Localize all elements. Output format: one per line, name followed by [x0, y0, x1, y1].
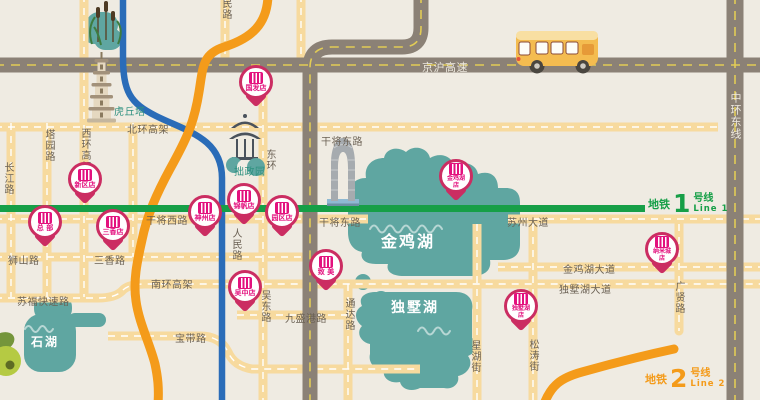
- metro-line1-number: 1: [673, 193, 690, 215]
- store-pin-label-line2: 店: [518, 313, 524, 320]
- road-label-ganjiang-east-upper: 干将东路: [321, 133, 363, 148]
- store-logo-icon: [275, 202, 289, 214]
- road-label-renmin-road: 人民路: [228, 228, 243, 261]
- road-label-sanxiang-road: 三香路: [94, 252, 126, 267]
- store-pin-label: 园区店: [272, 215, 293, 223]
- store-logo-icon: [449, 163, 463, 175]
- metro-line2-system: 地铁: [645, 371, 667, 387]
- metro-line2-english: Line 2: [690, 379, 725, 389]
- lake-label-jinji: 金鸡湖: [381, 228, 435, 252]
- metro-line1-label: 地铁 1 号线 Line 1: [648, 193, 728, 215]
- road-label-xinghu-street: 星湖街: [467, 340, 482, 373]
- lake-label-shihu: 石湖: [31, 333, 59, 350]
- store-logo-icon: [198, 202, 212, 214]
- store-pin-label: 锦帆店: [234, 203, 255, 211]
- store-pin-label: 新区店: [75, 182, 96, 190]
- road-label-baodai-road: 宝带路: [175, 330, 207, 345]
- road-label-songtao-street: 松涛街: [525, 339, 540, 372]
- store-logo-icon: [514, 293, 528, 305]
- store-logo-icon: [78, 169, 92, 181]
- road-label-tongda-road: 通达路: [341, 298, 356, 331]
- road-label-tayuan-road: 塔园路: [41, 129, 56, 162]
- road-label-ganjiang-west: 干将西路: [146, 212, 188, 227]
- road-label-jiushenggang-road: 九盛港路: [285, 310, 327, 325]
- lake-label-dushu: 独墅湖: [391, 297, 439, 317]
- metro-line2-label: 地铁 2 号线 Line 2: [645, 368, 725, 390]
- road-label-sufu-expressway: 苏福快速路: [17, 293, 70, 308]
- metro-line2-word: 号线: [690, 369, 725, 379]
- store-logo-icon: [38, 212, 52, 224]
- store-pin-label-line2: 店: [659, 256, 665, 263]
- store-pin-label: 三香店: [103, 229, 124, 237]
- map-artwork: [0, 0, 760, 400]
- metro-line1-word: 号线: [693, 194, 728, 204]
- road-label-guangxian-road: 广贤路: [671, 281, 686, 314]
- landmark-label-zhuozheng-garden: 拙政园: [234, 163, 266, 178]
- road-label-suzhou-avenue: 苏州大道: [507, 214, 549, 229]
- store-logo-icon: [249, 72, 263, 84]
- map-canvas: 京沪高速 中环东线 北环高架 干将东路 干将西路 干将东路 苏州大道 金鸡湖大道…: [0, 0, 760, 400]
- gate-of-orient-icon: [327, 138, 359, 206]
- store-logo-icon: [319, 256, 333, 268]
- road-label-renmin-road-north: 民路: [218, 0, 233, 20]
- store-logo-icon: [237, 190, 251, 202]
- store-pin-label-line2: 店: [453, 183, 459, 190]
- store-pin-label: 神州店: [195, 215, 216, 223]
- shihu-plant-icon: [0, 328, 21, 376]
- store-logo-icon: [655, 236, 669, 248]
- landmark-label-huqiu-tower: 虎丘塔: [114, 103, 146, 118]
- road-label-zhonghuan-east: 中环东线: [727, 92, 743, 140]
- store-pin-label: 致 美: [318, 269, 334, 277]
- metro-line2-number: 2: [670, 368, 687, 390]
- road-label-dushuhu-avenue: 独墅湖大道: [559, 281, 612, 296]
- store-logo-icon: [238, 277, 252, 289]
- road-label-ganjiang-east: 干将东路: [319, 214, 361, 229]
- road-label-changjiang-road: 长江路: [0, 162, 15, 195]
- road-label-nanhuan-viaduct: 南环高架: [151, 276, 193, 291]
- road-label-shishan-road: 狮山路: [8, 252, 40, 267]
- road-label-jinjihu-avenue: 金鸡湖大道: [563, 261, 616, 276]
- store-pin-label: 国发店: [246, 85, 267, 93]
- road-label-beihuan-viaduct: 北环高架: [127, 121, 169, 136]
- road-label-jinghu-expressway: 京沪高速: [422, 59, 468, 75]
- store-pin-label: 总 部: [37, 225, 53, 233]
- metro-line1-system: 地铁: [648, 196, 670, 212]
- store-pin-label: 吴中店: [235, 290, 256, 298]
- store-logo-icon: [106, 216, 120, 228]
- metro-line1: [0, 205, 645, 212]
- metro-line1-english: Line 1: [693, 204, 728, 214]
